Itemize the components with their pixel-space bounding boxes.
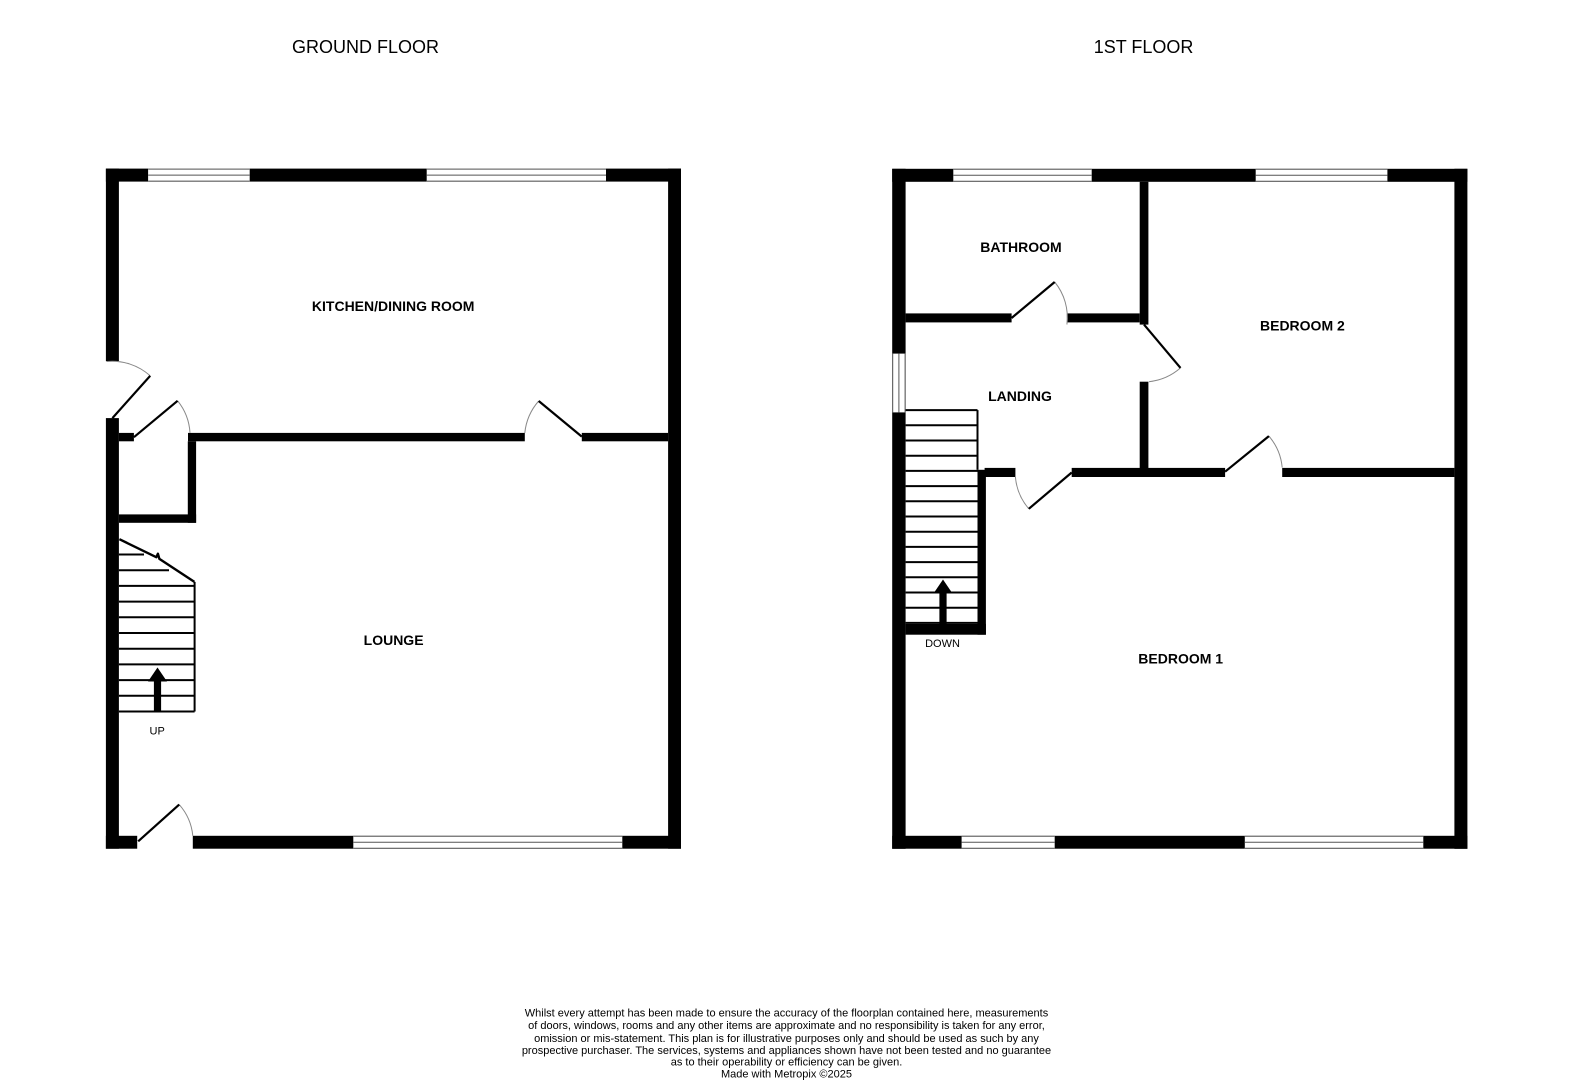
svg-text:BEDROOM 2: BEDROOM 2: [1260, 318, 1345, 334]
svg-text:Whilst every attempt has been: Whilst every attempt has been made to en…: [525, 1008, 1049, 1020]
svg-text:UP: UP: [150, 726, 165, 738]
svg-text:1ST FLOOR: 1ST FLOOR: [1094, 37, 1194, 57]
svg-text:BEDROOM 1: BEDROOM 1: [1138, 651, 1223, 667]
svg-text:DOWN: DOWN: [925, 638, 960, 650]
svg-text:KITCHEN/DINING ROOM: KITCHEN/DINING ROOM: [312, 298, 475, 314]
svg-text:as to their operability or eff: as to their operability or efficiency ca…: [671, 1057, 903, 1069]
svg-text:BATHROOM: BATHROOM: [980, 239, 1061, 255]
svg-text:GROUND FLOOR: GROUND FLOOR: [292, 37, 439, 57]
svg-text:prospective purchaser. The ser: prospective purchaser. The services, sys…: [522, 1045, 1051, 1057]
svg-text:LANDING: LANDING: [988, 388, 1052, 404]
svg-text:of doors, windows, rooms and a: of doors, windows, rooms and any other i…: [528, 1020, 1045, 1032]
svg-text:LOUNGE: LOUNGE: [364, 632, 424, 648]
svg-text:Made with Metropix ©2025: Made with Metropix ©2025: [721, 1069, 852, 1080]
svg-text:omission or mis-statement. Thi: omission or mis-statement. This plan is …: [534, 1033, 1039, 1045]
